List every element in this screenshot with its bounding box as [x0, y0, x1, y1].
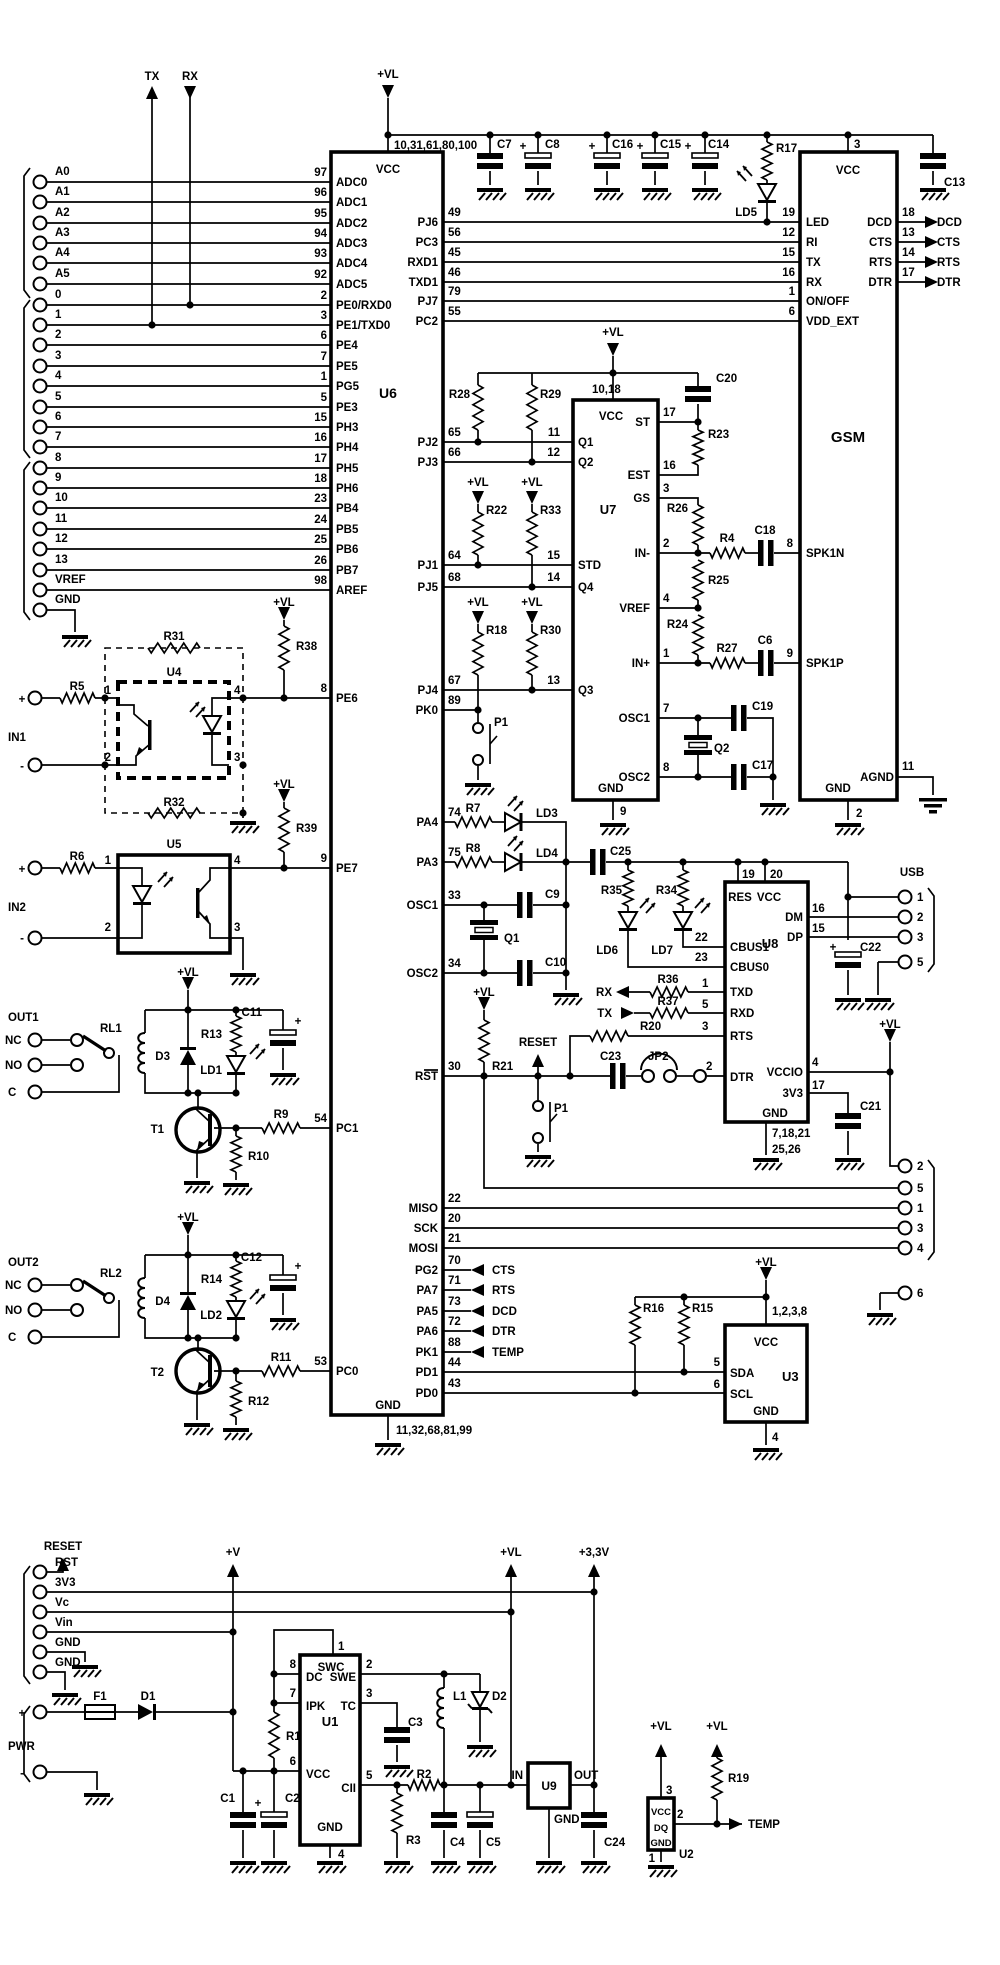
label-r33: R33 [540, 505, 561, 517]
label-+vl: +VL [467, 597, 488, 609]
label-43: 43 [448, 1378, 461, 1390]
connector-pad [34, 360, 47, 373]
connector-pad [34, 299, 47, 312]
label-2: 2 [706, 1061, 712, 1073]
label-dq: DQ [654, 1823, 668, 1834]
label-6: 6 [789, 306, 795, 318]
label-10-18: 10,18 [592, 384, 621, 396]
label-adc1: ADC1 [336, 197, 368, 209]
label-gnd: GND [554, 1814, 580, 1826]
label-14: 14 [902, 247, 915, 259]
label-pa3: PA3 [416, 857, 438, 869]
label-r5: R5 [70, 681, 85, 693]
label-89: 89 [448, 695, 461, 707]
junction-dot [148, 321, 155, 328]
label-88: 88 [448, 1337, 461, 1349]
label-usb: USB [900, 867, 924, 879]
label-nc: NC [5, 1035, 22, 1047]
label-2: 2 [856, 808, 862, 820]
label-adc5: ADC5 [336, 279, 368, 291]
label-25-26: 25,26 [772, 1144, 801, 1156]
label-vc: Vc [55, 1597, 70, 1609]
label-dtr: DTR [937, 277, 961, 289]
junction-dot [229, 1628, 236, 1635]
junction-dot [486, 131, 493, 138]
label-adc2: ADC2 [336, 218, 367, 230]
label-vref: VREF [619, 603, 650, 615]
label-11: 11 [55, 513, 68, 525]
label-18: 18 [314, 473, 327, 485]
label-vin: Vin [55, 1617, 73, 1629]
label-72: 72 [448, 1316, 461, 1328]
label-6: 6 [290, 1756, 296, 1768]
connector-pad [34, 604, 47, 617]
label-gnd: GND [825, 783, 851, 795]
label-ph3: PH3 [336, 422, 358, 434]
label-44: 44 [448, 1357, 461, 1369]
label-4: 4 [917, 1243, 924, 1255]
label-pc1: PC1 [336, 1123, 359, 1135]
label-r25: R25 [708, 575, 730, 587]
label-q1: Q1 [578, 437, 594, 449]
label-+: + [19, 1708, 26, 1720]
label-c25: C25 [610, 846, 632, 858]
label-rxd1: RXD1 [407, 257, 438, 269]
label-r6: R6 [70, 851, 85, 863]
label-est: EST [628, 470, 650, 482]
connector-pad [899, 956, 912, 969]
label-67: 67 [448, 675, 461, 687]
label-92: 92 [314, 269, 327, 281]
connector-pad [899, 1182, 912, 1195]
label-c24: C24 [604, 1837, 626, 1849]
label-c2: C2 [285, 1793, 300, 1805]
label-r8: R8 [466, 843, 481, 855]
label-+v: +V [226, 1547, 241, 1559]
label-r1: R1 [286, 1731, 301, 1743]
connector-pad [34, 196, 47, 209]
label-1: 1 [917, 892, 924, 904]
label-pc2: PC2 [416, 316, 438, 328]
label-17: 17 [902, 267, 915, 279]
label-scl: SCL [730, 1389, 753, 1401]
label-13: 13 [547, 675, 560, 687]
junction-dot [624, 858, 631, 865]
label-+vl: +VL [467, 477, 488, 489]
label-1: 1 [321, 371, 328, 383]
label-8: 8 [663, 762, 670, 774]
label-3: 3 [702, 1021, 708, 1033]
label-p1: P1 [554, 1103, 569, 1115]
connector-pad [34, 257, 47, 270]
junction-dot [679, 858, 686, 865]
label-ld4: LD4 [536, 848, 558, 860]
connector-pad [34, 237, 47, 250]
junction-dot [694, 604, 701, 611]
junction-dot [194, 1334, 201, 1341]
label-+: + [830, 942, 837, 954]
label-0: 0 [55, 289, 61, 301]
junction-dot [186, 301, 193, 308]
label-reset: RESET [44, 1541, 82, 1553]
label-4: 4 [812, 1057, 819, 1069]
connector-pad [29, 1279, 42, 1292]
label-adc0: ADC0 [336, 177, 367, 189]
label-rts: RTS [937, 257, 960, 269]
label-8: 8 [55, 452, 62, 464]
label-a3: A3 [55, 227, 70, 239]
label-5: 5 [714, 1357, 721, 1369]
label-3: 3 [663, 483, 669, 495]
label-+vl: +VL [602, 327, 623, 339]
label-2: 2 [917, 1161, 923, 1173]
connector-pad [533, 1133, 543, 1143]
label-7: 7 [55, 431, 61, 443]
label-c19: C19 [752, 701, 773, 713]
label-sda: SDA [730, 1368, 754, 1380]
label-r37: R37 [657, 996, 678, 1008]
label-5: 5 [55, 391, 62, 403]
label-rts: RTS [869, 257, 892, 269]
label-+vl: +VL [500, 1547, 521, 1559]
label-pc0: PC0 [336, 1366, 358, 1378]
label-46: 46 [448, 267, 461, 279]
junction-dot [480, 1072, 487, 1079]
junction-dot [562, 969, 569, 976]
label-15: 15 [782, 247, 795, 259]
label-+: + [637, 141, 644, 153]
label-c7: C7 [497, 139, 512, 151]
junction-dot [194, 1089, 201, 1096]
label-pd0: PD0 [416, 1388, 438, 1400]
label-r30: R30 [540, 625, 561, 637]
label-25: 25 [314, 534, 327, 546]
label-2: 2 [677, 1809, 683, 1821]
label-mosi: MOSI [409, 1243, 438, 1255]
label-q1: Q1 [504, 933, 520, 945]
label-ld1: LD1 [200, 1065, 222, 1077]
label-pa4: PA4 [416, 817, 438, 829]
label-dcd: DCD [937, 217, 962, 229]
connector-pad [899, 1202, 912, 1215]
label-4: 4 [234, 685, 241, 697]
label-q3: Q3 [578, 685, 593, 697]
label-in+: IN+ [632, 658, 651, 670]
junction-dot [651, 131, 658, 138]
junction-dot [534, 1072, 541, 1079]
connector-pad [34, 1646, 47, 1659]
label-rx: RX [596, 987, 612, 999]
label-tx: TX [145, 71, 160, 83]
connector-pad [34, 564, 47, 577]
label-no: NO [5, 1060, 22, 1072]
junction-dot [270, 1767, 277, 1774]
label-ld2: LD2 [200, 1310, 222, 1322]
label-12: 12 [547, 447, 560, 459]
label-4: 4 [338, 1849, 345, 1861]
label-dtr: DTR [730, 1072, 754, 1084]
label-7: 7 [321, 351, 327, 363]
label-r21: R21 [492, 1061, 514, 1073]
label-tx: TX [597, 1008, 612, 1020]
label-3v3: 3V3 [783, 1088, 803, 1100]
junction-dot [694, 549, 701, 556]
label-r38: R38 [296, 641, 318, 653]
junction-dot [480, 969, 487, 976]
label-20: 20 [448, 1213, 461, 1225]
connector-pad [34, 1666, 47, 1679]
label-gnd: GND [375, 1400, 401, 1412]
label-2: 2 [55, 329, 61, 341]
label-u2: U2 [679, 1849, 694, 1861]
label-miso: MISO [409, 1203, 438, 1215]
label-+vl: +VL [377, 69, 398, 81]
label-temp: TEMP [748, 1819, 780, 1831]
junction-dot [694, 418, 701, 425]
label-65: 65 [448, 427, 461, 439]
label-11: 11 [902, 761, 915, 773]
label-gs: GS [633, 493, 650, 505]
label-3: 3 [234, 752, 240, 764]
label-gnd: GND [762, 1108, 788, 1120]
connector-pad [29, 1304, 42, 1317]
label-c17: C17 [752, 760, 773, 772]
label-ld5: LD5 [735, 207, 757, 219]
junction-dot [886, 1068, 893, 1075]
connector-pad [34, 584, 47, 597]
label-7-18-21: 7,18,21 [772, 1128, 811, 1140]
junction-dot [528, 458, 535, 465]
label-12: 12 [55, 533, 68, 545]
junction-dot [184, 1006, 191, 1013]
label-24: 24 [314, 514, 327, 526]
connector-pad [34, 319, 47, 332]
connector-pad [664, 1070, 676, 1082]
label-u6: U6 [379, 385, 397, 401]
label-osc2: OSC2 [407, 968, 438, 980]
connector-pad [71, 1279, 83, 1291]
label-pj3: PJ3 [418, 457, 438, 469]
label-5: 5 [917, 1183, 924, 1195]
label-pa5: PA5 [416, 1306, 438, 1318]
label-2: 2 [321, 290, 327, 302]
junction-dot [232, 1089, 239, 1096]
label-pwr: PWR [8, 1741, 36, 1753]
label-r36: R36 [657, 974, 678, 986]
label-pj5: PJ5 [418, 582, 439, 594]
junction-dot [229, 1708, 236, 1715]
connector-pad [899, 1242, 912, 1255]
label-pd1: PD1 [416, 1367, 439, 1379]
label-1: 1 [105, 855, 112, 867]
label-49: 49 [448, 207, 461, 219]
junction-dot [562, 901, 569, 908]
label-5: 5 [366, 1770, 373, 1782]
label-4: 4 [234, 855, 241, 867]
label-+vl: +VL [521, 597, 542, 609]
connector-pad [29, 1059, 42, 1072]
label-dcd: DCD [492, 1306, 517, 1318]
schematic-canvas: TXRX+VL10,31,61,80,100VCCC7+C8+C16+C15+C… [0, 0, 1000, 1965]
label-r24: R24 [667, 619, 689, 631]
label-8: 8 [321, 683, 328, 695]
label-97: 97 [314, 167, 327, 179]
junction-dot [440, 1781, 447, 1788]
label-10-31-61-80-100: 10,31,61,80,100 [394, 140, 477, 152]
label-agnd: AGND [860, 772, 894, 784]
label-layer: TXRX+VL10,31,61,80,100VCCC7+C8+C16+C15+C… [5, 69, 965, 1865]
label-r10: R10 [248, 1151, 269, 1163]
label-out1: OUT1 [8, 1012, 39, 1024]
label-21: 21 [448, 1233, 461, 1245]
label-ph4: PH4 [336, 442, 359, 454]
junction-dot [440, 1670, 447, 1677]
label-11: 11 [548, 427, 561, 439]
connector-pad [71, 1034, 83, 1046]
label-out: OUT [574, 1770, 598, 1782]
junction-dot [476, 1781, 483, 1788]
label-pg5: PG5 [336, 381, 360, 393]
label-cii: CII [341, 1783, 356, 1795]
label-1: 1 [702, 978, 709, 990]
label-pk1: PK1 [416, 1347, 439, 1359]
label-c: C [8, 1332, 16, 1344]
label-1: 1 [55, 309, 62, 321]
connector-pad [71, 1059, 83, 1071]
junction-dot [393, 1781, 400, 1788]
label-vcc: VCC [651, 1807, 671, 1818]
label-c: C [8, 1087, 16, 1099]
label-74: 74 [448, 807, 461, 819]
label-10: 10 [55, 492, 68, 504]
label-c23: C23 [600, 1051, 621, 1063]
connector-pad [899, 1287, 912, 1300]
label-cbus1: CBUS1 [730, 942, 770, 954]
junction-dot [762, 1293, 769, 1300]
label-rl1: RL1 [100, 1023, 122, 1035]
junction-dot [528, 686, 535, 693]
label-12: 12 [782, 227, 795, 239]
label-66: 66 [448, 447, 461, 459]
label-3: 3 [854, 139, 860, 151]
label-cts: CTS [492, 1265, 515, 1277]
label-+vl: +VL [521, 477, 542, 489]
label-16: 16 [782, 267, 795, 279]
label-34: 34 [448, 958, 461, 970]
label-pa7: PA7 [416, 1285, 438, 1297]
label-reset: RESET [519, 1037, 557, 1049]
label-rl2: RL2 [100, 1268, 122, 1280]
label-c14: C14 [708, 139, 730, 151]
label-11-32-68-81-99: 11,32,68,81,99 [396, 1425, 472, 1437]
label-23: 23 [695, 952, 708, 964]
label-ph6: PH6 [336, 483, 358, 495]
label-cts: CTS [937, 237, 960, 249]
label-r23: R23 [708, 429, 729, 441]
label-+vl: +VL [273, 597, 294, 609]
label-9: 9 [787, 648, 793, 660]
label-rx: RX [806, 277, 822, 289]
label-1: 1 [649, 1853, 656, 1865]
label-73: 73 [448, 1296, 461, 1308]
label-pe5: PE5 [336, 361, 358, 373]
label-d1: D1 [141, 1691, 156, 1703]
junction-dot [694, 773, 701, 780]
label-adc4: ADC4 [336, 258, 368, 270]
junction-dot [507, 1781, 514, 1788]
label-vcc: VCC [754, 1337, 778, 1349]
connector-pad [473, 723, 483, 733]
junction-dot [239, 809, 246, 816]
label-c9: C9 [545, 889, 560, 901]
connector-pad [29, 1086, 42, 1099]
label-c21: C21 [860, 1101, 882, 1113]
label-gnd: GND [55, 594, 81, 606]
label-r28: R28 [449, 389, 471, 401]
label-15: 15 [547, 550, 560, 562]
label-pj6: PJ6 [418, 217, 438, 229]
junction-dot [844, 893, 851, 900]
label-vdd-ext: VDD_EXT [806, 316, 859, 328]
label-a1: A1 [55, 186, 70, 198]
label-ph5: PH5 [336, 463, 359, 475]
junction-dot [680, 1293, 687, 1300]
connector-pad [34, 523, 47, 536]
label-gnd: GND [753, 1406, 779, 1418]
label-r32: R32 [163, 797, 184, 809]
label-u7: U7 [600, 502, 617, 517]
label-spk1n: SPK1N [806, 548, 844, 560]
label-a2: A2 [55, 207, 70, 219]
label-18: 18 [902, 207, 915, 219]
connector-pad [899, 1222, 912, 1235]
label-jp2: JP2 [648, 1051, 668, 1063]
label-c22: C22 [860, 942, 881, 954]
junction-dot [763, 131, 770, 138]
label-vcc: VCC [306, 1769, 330, 1781]
label-4: 4 [55, 370, 62, 382]
connector-pad [34, 339, 47, 352]
label-+vl: +VL [650, 1721, 671, 1733]
label-rst: RST [55, 1557, 78, 1569]
label-5: 5 [702, 999, 709, 1011]
label-gnd: GND [317, 1822, 343, 1834]
label-c12: C12 [241, 1252, 262, 1264]
label-c3: C3 [408, 1717, 423, 1729]
label-23: 23 [314, 493, 327, 505]
label-+: + [295, 1261, 302, 1273]
junction-dot [694, 659, 701, 666]
label-pe6: PE6 [336, 693, 358, 705]
junction-dot [232, 1367, 239, 1374]
label-u4: U4 [167, 667, 182, 679]
label-6: 6 [321, 330, 327, 342]
label-r15: R15 [692, 1303, 714, 1315]
label-1: 1 [789, 286, 796, 298]
junction-dot [844, 131, 851, 138]
label-rts: RTS [492, 1285, 515, 1297]
label-22: 22 [448, 1193, 461, 1205]
junction-dot [184, 1251, 191, 1258]
label-79: 79 [448, 286, 461, 298]
label-p1: P1 [494, 717, 509, 729]
label-in-: IN- [635, 548, 651, 560]
label-r29: R29 [540, 389, 561, 401]
label-u9: U9 [541, 1779, 557, 1793]
label-r2: R2 [417, 1769, 432, 1781]
label-aref: AREF [336, 585, 367, 597]
label-+: + [19, 694, 26, 706]
